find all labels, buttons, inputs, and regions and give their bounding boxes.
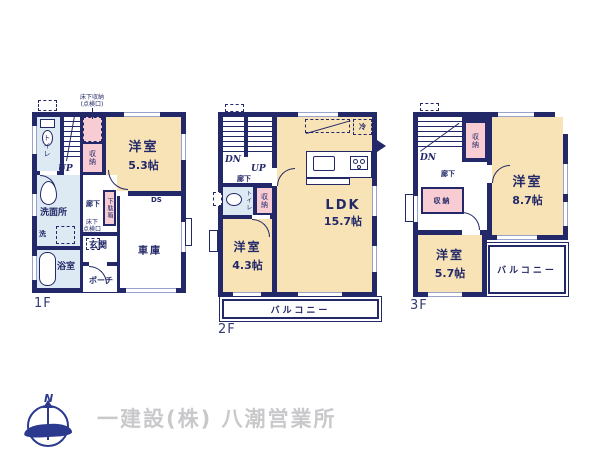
1f-porch-wall-right [107, 262, 117, 266]
entrance-label: 玄関 [89, 241, 107, 251]
bedroom-size: 5.3帖 [128, 157, 159, 173]
kitchen-counter-front [306, 178, 350, 185]
inspection-line2: 点検口 [80, 226, 104, 233]
3f-bedroom-small-door-gap [462, 230, 480, 235]
toilet-bowl [226, 193, 242, 206]
3f-bedroom-5_7: 洋室 5.7帖 [418, 235, 482, 292]
fridge-box: 冷 [353, 119, 372, 135]
shutter-box [185, 218, 192, 246]
bedroom-name: 洋室 [512, 171, 542, 190]
bathroom-label: 浴室 [57, 262, 75, 272]
vent-mark [377, 140, 386, 152]
floor-label-1f: 1F [34, 297, 52, 312]
balcony-label: バルコニー [271, 303, 331, 316]
2f-vent-box-above [225, 104, 244, 112]
bedroom-size: 4.3帖 [232, 257, 263, 273]
shutter-box [405, 194, 414, 222]
stairs-dn-label: DN [225, 155, 241, 165]
compass-arrowhead [43, 400, 53, 408]
1f-shoebox: 下駄箱 [103, 190, 116, 226]
window [32, 256, 37, 280]
bathtub [39, 252, 56, 286]
toilet-tank [213, 192, 222, 206]
washer-label: 洗 [39, 230, 46, 238]
toilet-tank [40, 119, 55, 128]
closet-label: 収納 [260, 193, 270, 209]
burner [357, 165, 361, 169]
hallway-label: 廊下 [441, 170, 455, 178]
window [298, 292, 342, 297]
balcony-label: バルコニー [497, 263, 557, 276]
toilet-label: トイレ [244, 190, 251, 211]
underfloor-storage-note: 床下収納 (点検口) [70, 94, 114, 108]
window [32, 194, 37, 216]
window [233, 292, 261, 297]
closet-label: 収納 [88, 150, 98, 166]
bedroom-size: 8.7帖 [512, 192, 543, 208]
window [498, 112, 534, 117]
bedroom-name: 洋室 [233, 238, 261, 255]
porch-label: ポーチ [89, 276, 113, 285]
kitchen-stove [350, 156, 368, 170]
burner [360, 159, 365, 164]
floor-label-3f: 3F [410, 299, 428, 314]
3f-closet-upper: 収納 [464, 121, 487, 160]
2f-balcony: バルコニー [222, 299, 379, 319]
window [563, 164, 568, 194]
window [124, 112, 160, 117]
2f-staircase-hall: DN UP 廊下 [223, 117, 272, 183]
washing-machine-box [56, 226, 75, 244]
kitchen-counter [306, 151, 372, 178]
company-name: 一建設(株) 八潮営業所 [97, 407, 337, 431]
bedroom-name: 洋室 [128, 136, 158, 155]
bedroom-name: 洋室 [436, 246, 464, 263]
ldk-name: LDK [325, 199, 360, 214]
3f-vent-box-above [420, 103, 439, 111]
window [181, 134, 186, 160]
washroom-sink [40, 181, 57, 205]
1f-vent-box-above [38, 100, 57, 111]
2f-ldk: LDK 15.7帖 [277, 117, 372, 292]
2f-closet: 収納 [255, 186, 274, 215]
stairs-up-label: UP [251, 164, 266, 174]
closet-label: 収納 [471, 133, 481, 149]
2f-toilet-room: トイレ [223, 187, 253, 215]
window [372, 246, 377, 272]
1f-closet: 収納 [83, 144, 102, 172]
ldk-size: 15.7帖 [324, 216, 362, 229]
window [563, 202, 568, 226]
window [372, 186, 377, 216]
bedroom-size: 5.7帖 [435, 265, 466, 281]
garage-gate [126, 288, 176, 293]
shoebox-label: 下駄箱 [105, 198, 114, 219]
3f-balcony: バルコニー [488, 245, 566, 294]
floorplan-canvas: 収納 洋室 5.3帖 下駄箱 [0, 0, 600, 450]
hallway-label: 廊下 [237, 175, 251, 183]
burner [353, 159, 358, 164]
hallway-label: 廊下 [86, 200, 100, 208]
kitchen-sink [313, 156, 335, 171]
floor-label-2f: 2F [218, 323, 236, 338]
ds-label: DS [150, 196, 163, 204]
north-compass-icon: N [21, 396, 77, 448]
stair-steps [418, 117, 462, 151]
note-pointer-line [92, 108, 93, 119]
3f-closet-lower: 収納 [421, 187, 464, 214]
garage-label: 車庫 [138, 246, 162, 258]
window [428, 292, 462, 297]
washroom-label: 洗面所 [40, 208, 67, 218]
1f-garage [120, 196, 181, 288]
shutter-box [209, 230, 218, 252]
inspection-note: 床下 点検口 [80, 219, 104, 233]
stair-divider [244, 117, 248, 157]
1f-underfloor-storage-box [83, 117, 102, 142]
ldk-label-block: LDK 15.7帖 [317, 199, 369, 229]
window [298, 112, 338, 117]
closet-label: 収納 [434, 196, 452, 206]
stairs-up-label: UP [58, 164, 73, 174]
toilet-label: トイレ [43, 134, 51, 158]
loft-diagonal [306, 120, 350, 134]
fridge-label: 冷 [359, 122, 366, 132]
window [497, 235, 537, 240]
loft-storage-dashed [305, 119, 350, 133]
window [32, 126, 37, 154]
